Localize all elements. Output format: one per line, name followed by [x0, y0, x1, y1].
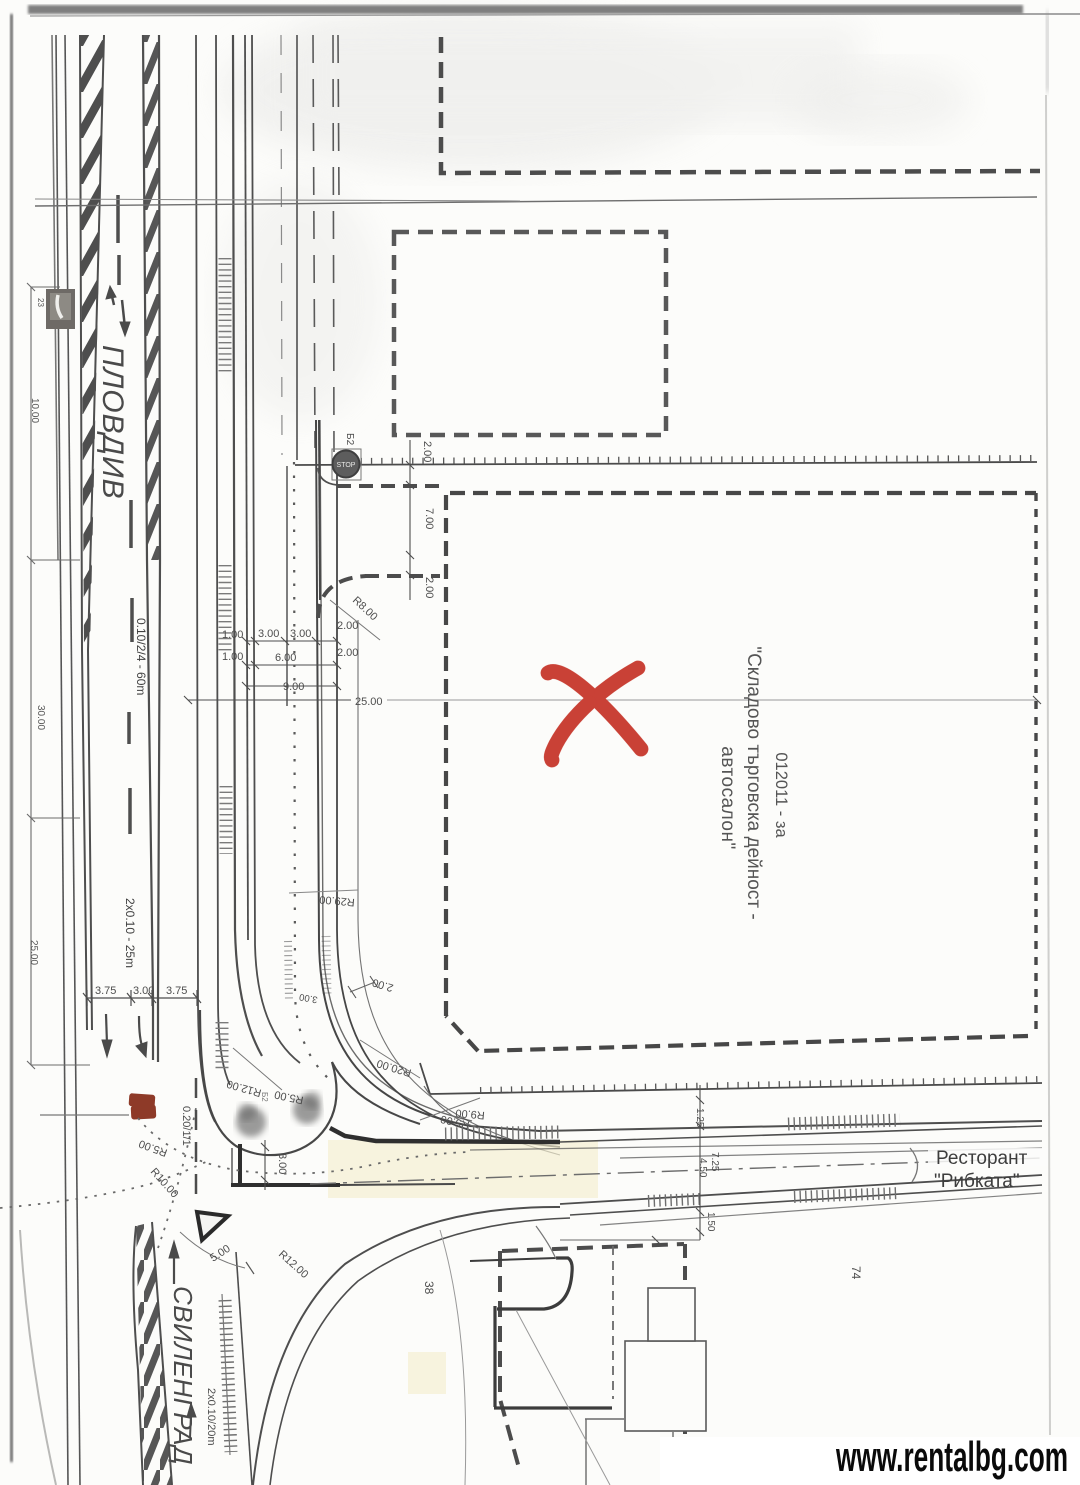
svg-text:10.00: 10.00 [29, 398, 40, 423]
svg-text:1.25: 1.25 [694, 1108, 705, 1128]
svg-text:Б2: Б2 [344, 433, 355, 446]
svg-text:2.00: 2.00 [421, 441, 433, 462]
svg-text:25.00: 25.00 [28, 940, 39, 965]
svg-text:2.00: 2.00 [337, 647, 358, 659]
svg-text:"Складово търговска дейност -: "Складово търговска дейност - [743, 646, 764, 919]
svg-text:автосалон": автосалон" [717, 746, 738, 849]
svg-text:2x0.10 - 25m: 2x0.10 - 25m [123, 898, 137, 968]
svg-text:1.50: 1.50 [705, 1212, 716, 1232]
svg-text:1.00: 1.00 [222, 629, 243, 641]
svg-text:1.00: 1.00 [222, 651, 243, 663]
svg-text:9.00: 9.00 [283, 681, 304, 693]
svg-text:0.10/2/4 - 60m: 0.10/2/4 - 60m [134, 618, 148, 695]
svg-text:ПЛОВДИВ: ПЛОВДИВ [96, 345, 129, 500]
svg-text:СВИЛЕНГРАД: СВИЛЕНГРАД [168, 1286, 198, 1465]
svg-text:23: 23 [36, 298, 45, 307]
svg-text:Ресторант: Ресторант [936, 1148, 1028, 1169]
svg-text:3.75: 3.75 [95, 985, 116, 997]
svg-text:www.rentalbg.com: www.rentalbg.com [835, 1433, 1068, 1480]
svg-text:2.00: 2.00 [423, 577, 435, 598]
svg-text:30.00: 30.00 [35, 705, 46, 730]
svg-text:3.00: 3.00 [276, 1153, 288, 1174]
svg-text:3.00: 3.00 [290, 628, 311, 640]
svg-text:3.00: 3.00 [133, 985, 154, 997]
svg-text:2x0.10/20m: 2x0.10/20m [205, 1388, 217, 1445]
svg-text:R9.00: R9.00 [455, 1106, 485, 1121]
svg-text:"Рибката": "Рибката" [934, 1171, 1020, 1192]
svg-text:012011 - за: 012011 - за [772, 752, 790, 838]
svg-text:38: 38 [422, 1281, 436, 1295]
svg-text:7.00: 7.00 [423, 508, 435, 529]
svg-text:0.20/1/1: 0.20/1/1 [180, 1106, 192, 1146]
svg-text:STOP: STOP [337, 462, 356, 469]
svg-text:2.00: 2.00 [337, 620, 358, 632]
svg-text:25.00: 25.00 [355, 696, 383, 708]
svg-text:6.00: 6.00 [275, 652, 296, 664]
svg-text:3.00: 3.00 [258, 628, 279, 640]
svg-text:3.75: 3.75 [166, 985, 187, 997]
svg-text:7.25: 7.25 [709, 1152, 720, 1172]
svg-text:74: 74 [849, 1266, 863, 1280]
svg-text:4.50: 4.50 [697, 1158, 708, 1178]
